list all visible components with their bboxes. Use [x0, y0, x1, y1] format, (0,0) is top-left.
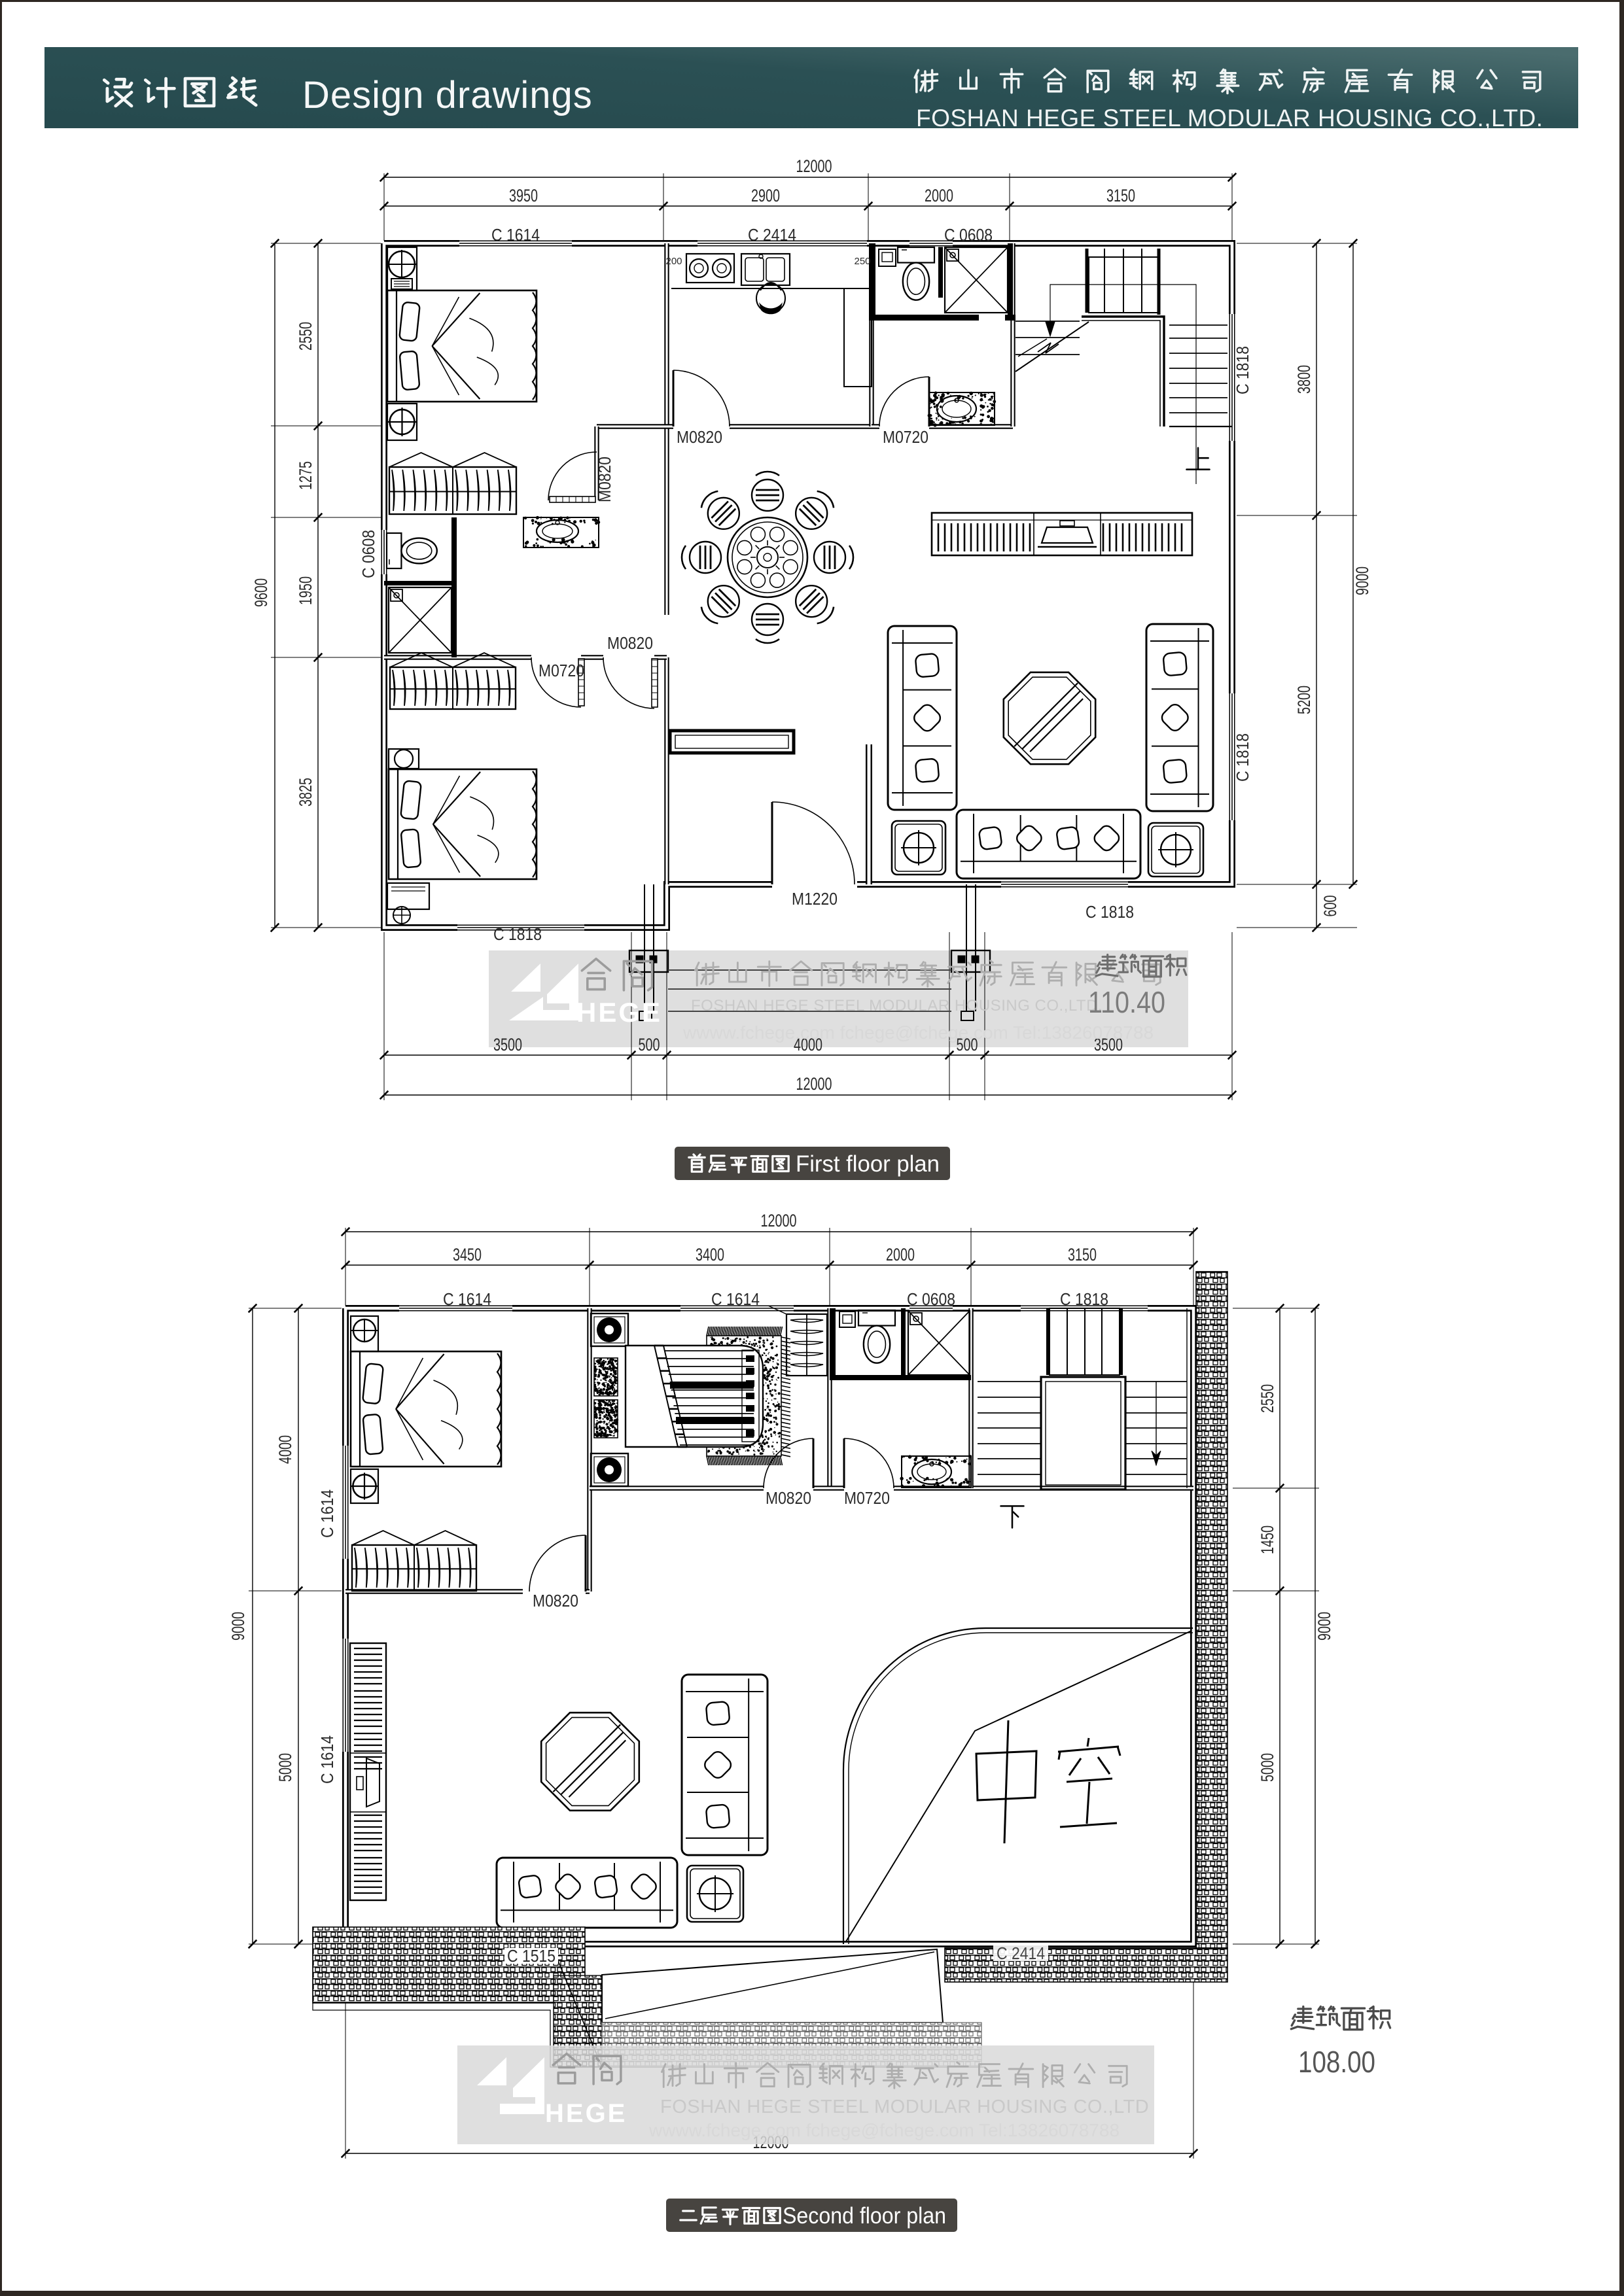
svg-text:9000: 9000 [228, 1612, 248, 1641]
svg-text:5000: 5000 [1258, 1753, 1277, 1782]
svg-text:C 1818: C 1818 [1233, 346, 1252, 394]
svg-text:12000: 12000 [796, 1074, 832, 1094]
svg-text:C 0608: C 0608 [907, 1289, 955, 1309]
svg-text:5200: 5200 [1294, 686, 1314, 714]
svg-text:C 1818: C 1818 [493, 924, 542, 944]
svg-text:4000: 4000 [275, 1435, 295, 1464]
svg-text:3150: 3150 [1106, 186, 1135, 205]
svg-text:5000: 5000 [275, 1753, 295, 1782]
svg-text:C 1818: C 1818 [1086, 902, 1134, 922]
svg-text:C 0608: C 0608 [944, 225, 993, 245]
svg-text:C 0608: C 0608 [359, 530, 378, 578]
svg-text:M0820: M0820 [607, 633, 653, 653]
svg-text:C 1818: C 1818 [1233, 733, 1252, 782]
svg-text:Second floor plan: Second floor plan [783, 2203, 946, 2229]
svg-text:FOSHAN HEGE STEEL MODULAR HOUS: FOSHAN HEGE STEEL MODULAR HOUSING CO.,LT… [916, 105, 1543, 131]
svg-text:M0820: M0820 [677, 427, 722, 447]
svg-text:3400: 3400 [696, 1245, 724, 1264]
svg-text:C 1614: C 1614 [317, 1489, 337, 1538]
svg-text:M0820: M0820 [766, 1488, 811, 1508]
svg-text:9000: 9000 [1315, 1612, 1334, 1641]
svg-text:M1220: M1220 [792, 889, 838, 909]
svg-text:M0720: M0720 [844, 1488, 890, 1508]
svg-text:M0720: M0720 [538, 661, 584, 680]
svg-text:M0820: M0820 [595, 457, 614, 502]
svg-text:3825: 3825 [296, 778, 315, 807]
svg-text:C 1614: C 1614 [443, 1289, 491, 1309]
svg-text:600: 600 [1320, 896, 1340, 917]
svg-text:108.00: 108.00 [1298, 2045, 1375, 2079]
svg-text:1450: 1450 [1258, 1525, 1277, 1554]
svg-text:FOSHAN HEGE STEEL MODULAR HOUS: FOSHAN HEGE STEEL MODULAR HOUSING CO.,LT… [660, 2096, 1149, 2117]
svg-text:C 2414: C 2414 [748, 225, 796, 245]
svg-text:2900: 2900 [751, 186, 780, 205]
svg-text:2550: 2550 [296, 322, 315, 351]
svg-text:1950: 1950 [296, 576, 315, 605]
svg-text:9000: 9000 [1352, 566, 1372, 595]
svg-text:C 1818: C 1818 [1060, 1289, 1108, 1309]
svg-text:1275: 1275 [296, 461, 315, 490]
svg-text:Design drawings: Design drawings [302, 74, 593, 116]
svg-text:3950: 3950 [509, 186, 538, 205]
svg-text:C 1614: C 1614 [711, 1289, 760, 1309]
svg-text:9600: 9600 [251, 578, 271, 607]
svg-text:3450: 3450 [453, 1245, 482, 1264]
svg-text:M0820: M0820 [533, 1591, 578, 1610]
svg-text:3800: 3800 [1294, 365, 1314, 394]
svg-text:2550: 2550 [1258, 1384, 1277, 1413]
svg-text:110.40: 110.40 [1088, 985, 1165, 1019]
svg-text:C 2414: C 2414 [997, 1943, 1045, 1963]
svg-text:250: 250 [854, 256, 870, 267]
svg-text:FOSHAN HEGE STEEL MODULAR HOUS: FOSHAN HEGE STEEL MODULAR HOUSING CO.,LT… [691, 997, 1103, 1015]
svg-text:12000: 12000 [761, 1211, 797, 1230]
svg-text:First floor plan: First floor plan [796, 1151, 940, 1177]
svg-text:C 1614: C 1614 [491, 225, 540, 245]
svg-text:C 1614: C 1614 [317, 1735, 337, 1784]
svg-text:HEGE: HEGE [545, 2099, 627, 2128]
svg-text:3500: 3500 [493, 1035, 522, 1054]
svg-text:C 1515: C 1515 [507, 1946, 556, 1966]
svg-text:M0720: M0720 [883, 427, 928, 447]
svg-text:12000: 12000 [796, 156, 832, 176]
svg-text:wwww.fchege.com fchege@fchege: wwww.fchege.com fchege@fchege.com Tel:13… [682, 1022, 1154, 1043]
svg-text:3150: 3150 [1068, 1245, 1097, 1264]
svg-text:HEGE: HEGE [576, 997, 662, 1028]
svg-text:wwww.fchege.com fchege@fchege: wwww.fchege.com fchege@fchege.com Tel:13… [648, 2120, 1120, 2140]
svg-text:500: 500 [639, 1035, 660, 1054]
svg-text:2000: 2000 [925, 186, 953, 205]
svg-text:200: 200 [665, 256, 682, 267]
svg-text:2000: 2000 [886, 1245, 915, 1264]
